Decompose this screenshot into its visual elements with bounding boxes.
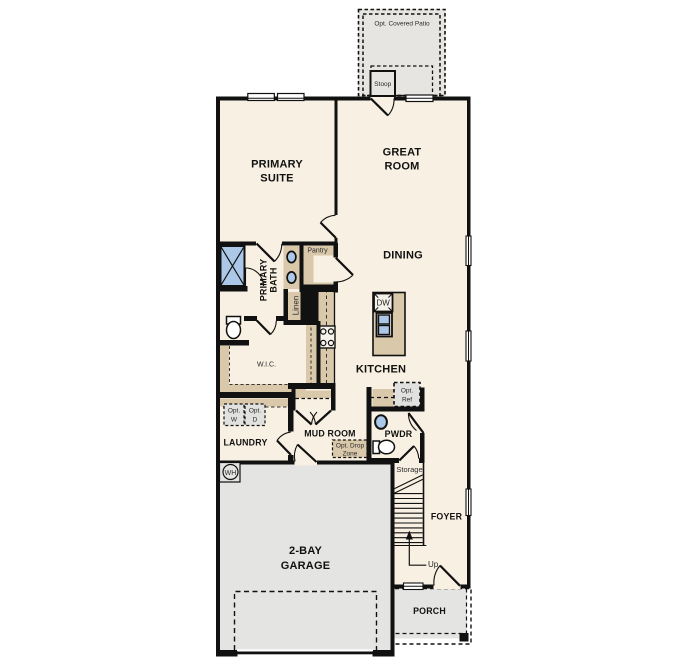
svg-text:FOYER: FOYER bbox=[431, 511, 463, 521]
svg-text:W: W bbox=[231, 417, 238, 424]
svg-text:PRIMARY: PRIMARY bbox=[259, 259, 269, 302]
svg-text:KITCHEN: KITCHEN bbox=[356, 364, 406, 376]
svg-text:GARAGE: GARAGE bbox=[281, 560, 330, 572]
svg-text:Pantry: Pantry bbox=[307, 248, 328, 255]
svg-text:Opt.: Opt. bbox=[228, 408, 240, 415]
svg-text:PORCH: PORCH bbox=[413, 606, 446, 616]
svg-text:SUITE: SUITE bbox=[260, 173, 293, 185]
svg-text:DINING: DINING bbox=[383, 250, 423, 262]
svg-text:BATH: BATH bbox=[269, 267, 279, 292]
svg-text:LAUNDRY: LAUNDRY bbox=[223, 437, 267, 447]
svg-text:PRIMARY: PRIMARY bbox=[251, 159, 303, 171]
svg-text:DW: DW bbox=[377, 299, 391, 308]
svg-text:Opt. Covered Patio: Opt. Covered Patio bbox=[374, 21, 430, 28]
svg-text:Ref: Ref bbox=[402, 397, 412, 404]
svg-text:MUD ROOM: MUD ROOM bbox=[304, 429, 355, 439]
svg-text:W.I.C.: W.I.C. bbox=[257, 362, 276, 369]
svg-text:Up: Up bbox=[428, 560, 439, 569]
svg-text:D: D bbox=[253, 417, 258, 424]
svg-text:WH: WH bbox=[225, 470, 237, 477]
svg-text:Linen: Linen bbox=[292, 296, 301, 316]
svg-text:2-BAY: 2-BAY bbox=[289, 545, 322, 557]
svg-text:Stoop: Stoop bbox=[374, 81, 391, 88]
svg-text:Storage: Storage bbox=[396, 465, 422, 474]
svg-text:Zone: Zone bbox=[343, 451, 358, 458]
svg-text:PWDR: PWDR bbox=[385, 429, 413, 439]
svg-text:Opt.: Opt. bbox=[401, 388, 413, 395]
svg-text:Opt. Drop: Opt. Drop bbox=[336, 443, 365, 450]
svg-text:ROOM: ROOM bbox=[384, 161, 419, 173]
svg-text:Opt.: Opt. bbox=[249, 408, 261, 415]
svg-text:GREAT: GREAT bbox=[383, 146, 422, 158]
